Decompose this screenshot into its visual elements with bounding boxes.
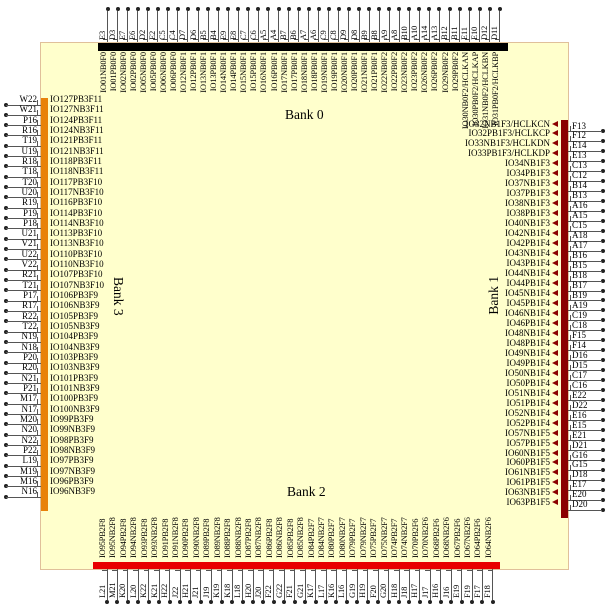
pin-io-label: IO43PB1F4 <box>400 258 550 268</box>
pin-ball-label: B7 <box>279 12 288 40</box>
pin-ball-label: G21 <box>296 572 305 598</box>
pin-dot <box>334 600 338 604</box>
pin-tick <box>311 570 316 571</box>
pin-tick <box>570 505 571 510</box>
io-pointer <box>552 121 558 127</box>
pin-ball-label: F22 <box>264 572 273 598</box>
pin-tick <box>570 126 571 131</box>
io-pointer <box>552 190 558 196</box>
pin-ball-label: B14 <box>572 180 602 190</box>
pin-ball-label: V22 <box>6 259 37 269</box>
pin-tick <box>394 570 399 571</box>
pin-tick <box>570 485 571 490</box>
pin-tick <box>570 395 571 400</box>
pin-ball-label: E6 <box>128 12 137 40</box>
pin-io-label: IO40NB1F3 <box>400 218 550 228</box>
pin-tick <box>37 327 38 332</box>
pin-io-label: IO49PB1F4 <box>400 358 550 368</box>
pin-tick <box>570 365 571 370</box>
pin-tick <box>217 570 222 571</box>
io-pointer <box>552 240 558 246</box>
pin-io-label: IO63NB1F5 <box>400 487 550 497</box>
pin-io-label: IO51PB1F4 <box>400 398 550 408</box>
pin-ball-label: M16 <box>6 476 37 486</box>
pin-ball-label: K19 <box>212 572 221 598</box>
pin-ball-label: F14 <box>572 340 602 350</box>
pin-ball-label: U21 <box>6 228 37 238</box>
pin-io-label: IO33PB1F3/HCLKDP <box>400 148 550 158</box>
pin-ball-label: A15 <box>572 210 602 220</box>
pin-io-label: IO22PB0F2 <box>390 52 399 91</box>
io-pointer <box>552 330 558 336</box>
pin-ball-label: C12 <box>572 170 602 180</box>
pin-ball-label: A8 <box>390 12 399 40</box>
pin-ball-label: R18 <box>6 156 37 166</box>
pin-tick <box>570 435 571 440</box>
io-pointer <box>552 469 558 475</box>
pin-ball-label: A9 <box>380 12 389 40</box>
pin-io-label: IO107PB3F10 <box>50 269 170 279</box>
pin-tick <box>570 305 571 310</box>
pin-io-label: IO43NB1F4 <box>400 248 550 258</box>
pin-dot <box>261 600 265 604</box>
pin-tick <box>37 120 38 125</box>
pin-io-label: IO44PB1F4 <box>400 278 550 288</box>
pin-tick <box>37 368 38 373</box>
pin-tick <box>37 430 38 435</box>
pin-ball-label: C17 <box>572 370 602 380</box>
pin-tick <box>154 570 159 571</box>
pin-tick <box>37 254 38 259</box>
pin-io-label: IO46NB1F4 <box>400 308 550 318</box>
pin-io-label: IO110NB3F10 <box>50 259 170 269</box>
pin-io-label: IO118NB3F11 <box>50 166 170 176</box>
pin-tick <box>570 415 571 420</box>
pin-io-label: IO88NB2F8 <box>234 512 243 558</box>
pin-io-label: IO20NB0F1 <box>340 52 349 93</box>
pin-io-label: IO32PB1F3/HCLKCP <box>400 128 550 138</box>
pin-io-label: IO117PB3F10 <box>50 177 170 187</box>
pin-ball-label: D15 <box>572 360 602 370</box>
pin-ball-label: L19 <box>6 455 37 465</box>
pin-io-label: IO80NB2F7 <box>338 512 347 558</box>
pin-ball-label: B11 <box>450 12 459 40</box>
pin-tick <box>165 570 170 571</box>
pin-dot <box>105 600 109 604</box>
pin-io-label: IO48NB1F4 <box>400 328 550 338</box>
pin-tick <box>570 136 571 141</box>
pin-ball-label: G20 <box>379 572 388 598</box>
pin-ball-label: G16 <box>572 450 602 460</box>
pin-ball-label: W21 <box>6 104 37 114</box>
pin-io-label: IO107NB3F10 <box>50 280 170 290</box>
pin-tick <box>144 570 149 571</box>
pin-ball-label: A5 <box>259 12 268 40</box>
pin-ball-label: F18 <box>483 572 492 598</box>
pin-io-label: IO91NB2F8 <box>171 512 180 558</box>
pin-io-label: IO101PB3F9 <box>50 373 170 383</box>
pin-io-label: IO16NB0F1 <box>259 52 268 93</box>
pin-io-label: IO74NB2F7 <box>400 512 409 558</box>
pin-tick <box>570 276 571 281</box>
io-pointer <box>552 230 558 236</box>
pin-io-label: IO75NB2F7 <box>380 512 389 558</box>
pin-tick <box>384 570 389 571</box>
pin-tick <box>238 570 243 571</box>
pin-ball-label: A17 <box>572 240 602 250</box>
pin-ball-label: L16 <box>337 572 346 598</box>
pin-ball-label: G22 <box>275 572 284 598</box>
pin-ball-label: M19 <box>6 466 37 476</box>
pin-ball-label: E17 <box>572 479 602 489</box>
io-pointer <box>552 450 558 456</box>
pin-io-label: IO79PB2F7 <box>348 512 357 558</box>
pin-ball-label: N21 <box>6 373 37 383</box>
pin-ball-label: C18 <box>572 320 602 330</box>
pin-tick <box>352 570 357 571</box>
pin-io-label: IO19NB0F1 <box>320 52 329 93</box>
io-pointer <box>552 130 558 136</box>
pin-ball-label: D3 <box>108 12 117 40</box>
pin-tick <box>196 570 201 571</box>
pin-tick <box>488 570 493 571</box>
pin-tick <box>570 425 571 430</box>
pin-io-label: IO85PB2F8 <box>286 512 295 558</box>
bank0-label: Bank 0 <box>285 107 324 123</box>
pin-ball-label: F12 <box>572 130 602 140</box>
pin-ball-label: A14 <box>420 12 429 40</box>
pin-dot <box>147 600 151 604</box>
pin-tick <box>37 203 38 208</box>
pin-io-label: IO89NB2F8 <box>213 512 222 558</box>
pin-ball-label: B19 <box>572 290 602 300</box>
pin-tick <box>300 570 305 571</box>
pin-io-label: IO60PB1F5 <box>400 457 550 467</box>
pin-dot <box>178 600 182 604</box>
pin-ball-label: K18 <box>223 572 232 598</box>
io-pointer <box>552 210 558 216</box>
pin-io-label: IO104NB3F9 <box>50 342 170 352</box>
pin-io-label: IO31NB0F2/HCLKBN <box>481 52 490 129</box>
pin-dot <box>314 600 318 604</box>
pin-tick <box>37 100 38 105</box>
pin-io-label: IO16PB0F1 <box>270 52 279 91</box>
pin-tick <box>425 570 430 571</box>
io-pointer <box>552 260 558 266</box>
pin-ball-label: U20 <box>6 187 37 197</box>
pin-tick <box>37 471 38 476</box>
pin-ball-label: B16 <box>572 250 602 260</box>
pin-ball-label: G15 <box>572 459 602 469</box>
pin-ball-label: F17 <box>473 572 482 598</box>
pin-ball-label: K21 <box>150 572 159 598</box>
pin-io-label: IO93PB2F8 <box>140 512 149 558</box>
pin-io-label: IO79NB2F7 <box>359 512 368 558</box>
pin-io-label: IO106NB3F9 <box>50 300 170 310</box>
pin-io-label: IO84PB2F7 <box>307 512 316 558</box>
pin-ball-label: B15 <box>572 260 602 270</box>
io-pointer <box>552 310 558 316</box>
pin-io-label: IO37NB1F3 <box>400 178 550 188</box>
pin-ball-label: H16 <box>431 572 440 598</box>
pin-ball-label: L21 <box>98 572 107 598</box>
pin-ball-label: C6 <box>249 12 258 40</box>
pin-io-label: IO103PB3F9 <box>50 352 170 362</box>
pin-dot <box>439 600 443 604</box>
io-pointer <box>552 400 558 406</box>
pin-tick <box>570 256 571 261</box>
io-pointer <box>552 440 558 446</box>
pin-tick <box>477 570 482 571</box>
pin-io-label: IO14NB0F1 <box>219 52 228 93</box>
pin-ball-label: J21 <box>191 572 200 598</box>
pin-io-label: IO68PB2F6 <box>432 512 441 558</box>
pin-io-label: IO50PB1F4 <box>400 378 550 388</box>
pin-dot <box>188 600 192 604</box>
pin-ball-label: N19 <box>6 331 37 341</box>
pin-io-label: IO34NB1F3 <box>400 158 550 168</box>
pin-tick <box>37 358 38 363</box>
pin-dot <box>449 600 453 604</box>
pin-tick <box>248 570 253 571</box>
pin-ball-label: J19 <box>202 572 211 598</box>
pin-ball-label: D9 <box>339 12 348 40</box>
pin-ball-label: V21 <box>6 238 37 248</box>
pin-ball-label: D7 <box>178 12 187 40</box>
pin-io-label: IO20PB0F1 <box>350 52 359 91</box>
pin-io-label: IO97NB3F9 <box>50 466 170 476</box>
pin-line <box>568 510 602 511</box>
pin-line <box>6 497 41 498</box>
pin-dot <box>480 600 484 604</box>
pin-io-label: IO100NB3F9 <box>50 404 170 414</box>
pin-tick <box>37 316 38 321</box>
pin-io-label: IO12PB0F1 <box>189 52 198 91</box>
pin-ball-label: P16 <box>6 115 37 125</box>
pin-tick <box>37 450 38 455</box>
pin-ball-label: E22 <box>572 390 602 400</box>
pin-io-label: IO91PB2F8 <box>161 512 170 558</box>
pin-ball-label: D21 <box>572 440 602 450</box>
io-pointer <box>552 380 558 386</box>
pin-ball-label: F21 <box>285 572 294 598</box>
pin-io-label: IO103NB3F9 <box>50 362 170 372</box>
pin-io-label: IO23PB0F2 <box>410 52 419 91</box>
pin-io-label: IO31PB0F2/HCLKBP <box>491 52 500 126</box>
pin-io-label: IO99PB3F9 <box>50 414 170 424</box>
pin-tick <box>331 570 336 571</box>
pin-tick <box>37 151 38 156</box>
pin-tick <box>290 570 295 571</box>
pin-ball-label: U22 <box>6 249 37 259</box>
pin-ball-label: R21 <box>6 269 37 279</box>
pin-ball-label: K16 <box>327 572 336 598</box>
pin-dot <box>407 600 411 604</box>
pin-io-label: IO26PB0F2 <box>430 52 439 91</box>
pin-tick <box>37 306 38 311</box>
io-pointer <box>552 160 558 166</box>
pin-tick <box>37 161 38 166</box>
pin-io-label: IO87NB2F8 <box>254 512 263 558</box>
pin-tick <box>373 570 378 571</box>
pin-ball-label: E16 <box>572 410 602 420</box>
pin-tick <box>37 481 38 486</box>
pin-dot <box>418 600 422 604</box>
pin-ball-label: B10 <box>400 12 409 40</box>
pin-io-label: IO75PB2F7 <box>369 512 378 558</box>
pin-ball-label: L18 <box>233 572 242 598</box>
pin-io-label: IO21PB0F1 <box>370 52 379 91</box>
pin-tick <box>570 236 571 241</box>
pin-io-label: IO23NB0F2 <box>400 52 409 93</box>
io-pointer <box>552 320 558 326</box>
pin-io-label: IO105NB3F9 <box>50 321 170 331</box>
pin-ball-label: E21 <box>572 430 602 440</box>
pin-ball-label: M21 <box>108 572 117 598</box>
pin-ball-label: P17 <box>6 290 37 300</box>
pin-ball-label: M20 <box>6 414 37 424</box>
pin-ball-label: B13 <box>572 190 602 200</box>
pin-io-label: IO67NB2F6 <box>463 512 472 558</box>
pin-io-label: IO01PB0F0 <box>109 52 118 91</box>
pin-ball-label: P22 <box>6 445 37 455</box>
pin-ball-label: J20 <box>254 572 263 598</box>
pinout-diagram: Bank 0 Bank 1 Bank 2 Bank 3 E3IO01NB0F0D… <box>0 0 610 610</box>
pin-tick <box>37 130 38 135</box>
pin-ball-label: L20 <box>129 572 138 598</box>
pin-io-label: IO48PB1F4 <box>400 338 550 348</box>
pin-io-label: IO118PB3F11 <box>50 156 170 166</box>
pin-tick <box>37 347 38 352</box>
pin-io-label: IO49NB1F4 <box>400 348 550 358</box>
pin-ball-label: H20 <box>244 572 253 598</box>
pin-io-label: IO127PB3F11 <box>50 94 170 104</box>
pin-ball-label: P20 <box>6 352 37 362</box>
pin-io-label: IO101NB3F9 <box>50 383 170 393</box>
io-pointer <box>552 170 558 176</box>
pin-ball-label: H19 <box>358 572 367 598</box>
pin-tick <box>37 244 38 249</box>
pin-dot <box>491 600 495 604</box>
pin-ball-label: R16 <box>6 125 37 135</box>
pin-io-label: IO121PB3F11 <box>50 135 170 145</box>
io-pointer <box>552 410 558 416</box>
bank3-bar <box>41 98 48 511</box>
pin-ball-label: J22 <box>171 572 180 598</box>
pin-ball-label: E3 <box>98 12 107 40</box>
io-pointer <box>552 220 558 226</box>
pin-tick <box>37 213 38 218</box>
io-pointer <box>552 360 558 366</box>
pin-tick <box>570 295 571 300</box>
pin-dot <box>126 600 130 604</box>
pin-io-label: IO124NB3F11 <box>50 125 170 135</box>
pin-ball-label: P21 <box>6 383 37 393</box>
pin-tick <box>227 570 232 571</box>
pin-line <box>499 11 500 42</box>
pin-io-label: IO74PB2F7 <box>390 512 399 558</box>
pin-tick <box>258 570 263 571</box>
pin-tick <box>446 570 451 571</box>
pin-ball-label: R20 <box>6 362 37 372</box>
pin-ball-label: H22 <box>160 572 169 598</box>
pin-io-label: IO06NB0F0 <box>159 52 168 93</box>
pin-io-label: IO45PB1F4 <box>400 298 550 308</box>
pin-io-label: IO42PB1F4 <box>400 238 550 248</box>
pin-tick <box>570 286 571 291</box>
pin-io-label: IO85NB2F8 <box>296 512 305 558</box>
pin-tick <box>37 337 38 342</box>
pin-ball-label: A19 <box>572 300 602 310</box>
pin-io-label: IO34PB1F3 <box>400 168 550 178</box>
pin-dot <box>136 600 140 604</box>
pin-ball-label: J18 <box>400 572 409 598</box>
pin-ball-label: B12 <box>440 12 449 40</box>
pin-io-label: IO121NB3F11 <box>50 146 170 156</box>
pin-tick <box>37 296 38 301</box>
io-pointer <box>552 499 558 505</box>
pin-io-label: IO100PB3F9 <box>50 393 170 403</box>
pin-io-label: IO13PB0F1 <box>209 52 218 91</box>
pin-tick <box>37 419 38 424</box>
pin-ball-label: T18 <box>6 166 37 176</box>
pin-tick <box>175 570 180 571</box>
pin-io-label: IO61NB1F5 <box>400 467 550 477</box>
pin-ball-label: A10 <box>410 12 419 40</box>
pin-ball-label: A6 <box>309 12 318 40</box>
pin-io-label: IO05PB0F0 <box>149 52 158 91</box>
pin-ball-label: D20 <box>572 499 602 509</box>
pin-io-label: IO106PB3F9 <box>50 290 170 300</box>
pin-dot <box>397 600 401 604</box>
pin-tick <box>363 570 368 571</box>
pin-io-label: IO86NB2F8 <box>275 512 284 558</box>
pin-io-label: IO88PB2F8 <box>223 512 232 558</box>
pin-io-label: IO63PB1F5 <box>400 497 550 507</box>
pin-tick <box>570 475 571 480</box>
pin-tick <box>570 176 571 181</box>
pin-io-label: IO124PB3F11 <box>50 115 170 125</box>
io-pointer <box>552 430 558 436</box>
pin-tick <box>37 409 38 414</box>
pin-io-label: IO45NB1F4 <box>400 288 550 298</box>
pin-io-label: IO50NB1F4 <box>400 368 550 378</box>
pin-tick <box>37 110 38 115</box>
pin-ball-label: F19 <box>463 572 472 598</box>
pin-dot <box>251 600 255 604</box>
pin-io-label: IO113PB3F10 <box>50 228 170 238</box>
pin-tick <box>570 465 571 470</box>
io-pointer <box>552 459 558 465</box>
pin-tick <box>37 234 38 239</box>
pin-tick <box>37 399 38 404</box>
pin-tick <box>37 275 38 280</box>
pin-ball-label: T22 <box>6 321 37 331</box>
pin-line <box>492 569 493 600</box>
pin-tick <box>206 570 211 571</box>
pin-tick <box>37 182 38 187</box>
pin-tick <box>269 570 274 571</box>
pin-io-label: IO02PB0F0 <box>129 52 138 91</box>
pin-ball-label: P18 <box>6 218 37 228</box>
pin-dot <box>241 600 245 604</box>
pin-ball-label: A18 <box>572 230 602 240</box>
pin-tick <box>279 570 284 571</box>
pin-ball-label: W22 <box>6 94 37 104</box>
pin-ball-label: E20 <box>572 489 602 499</box>
pin-ball-label: H18 <box>390 572 399 598</box>
pin-io-label: IO13NB0F1 <box>199 52 208 93</box>
